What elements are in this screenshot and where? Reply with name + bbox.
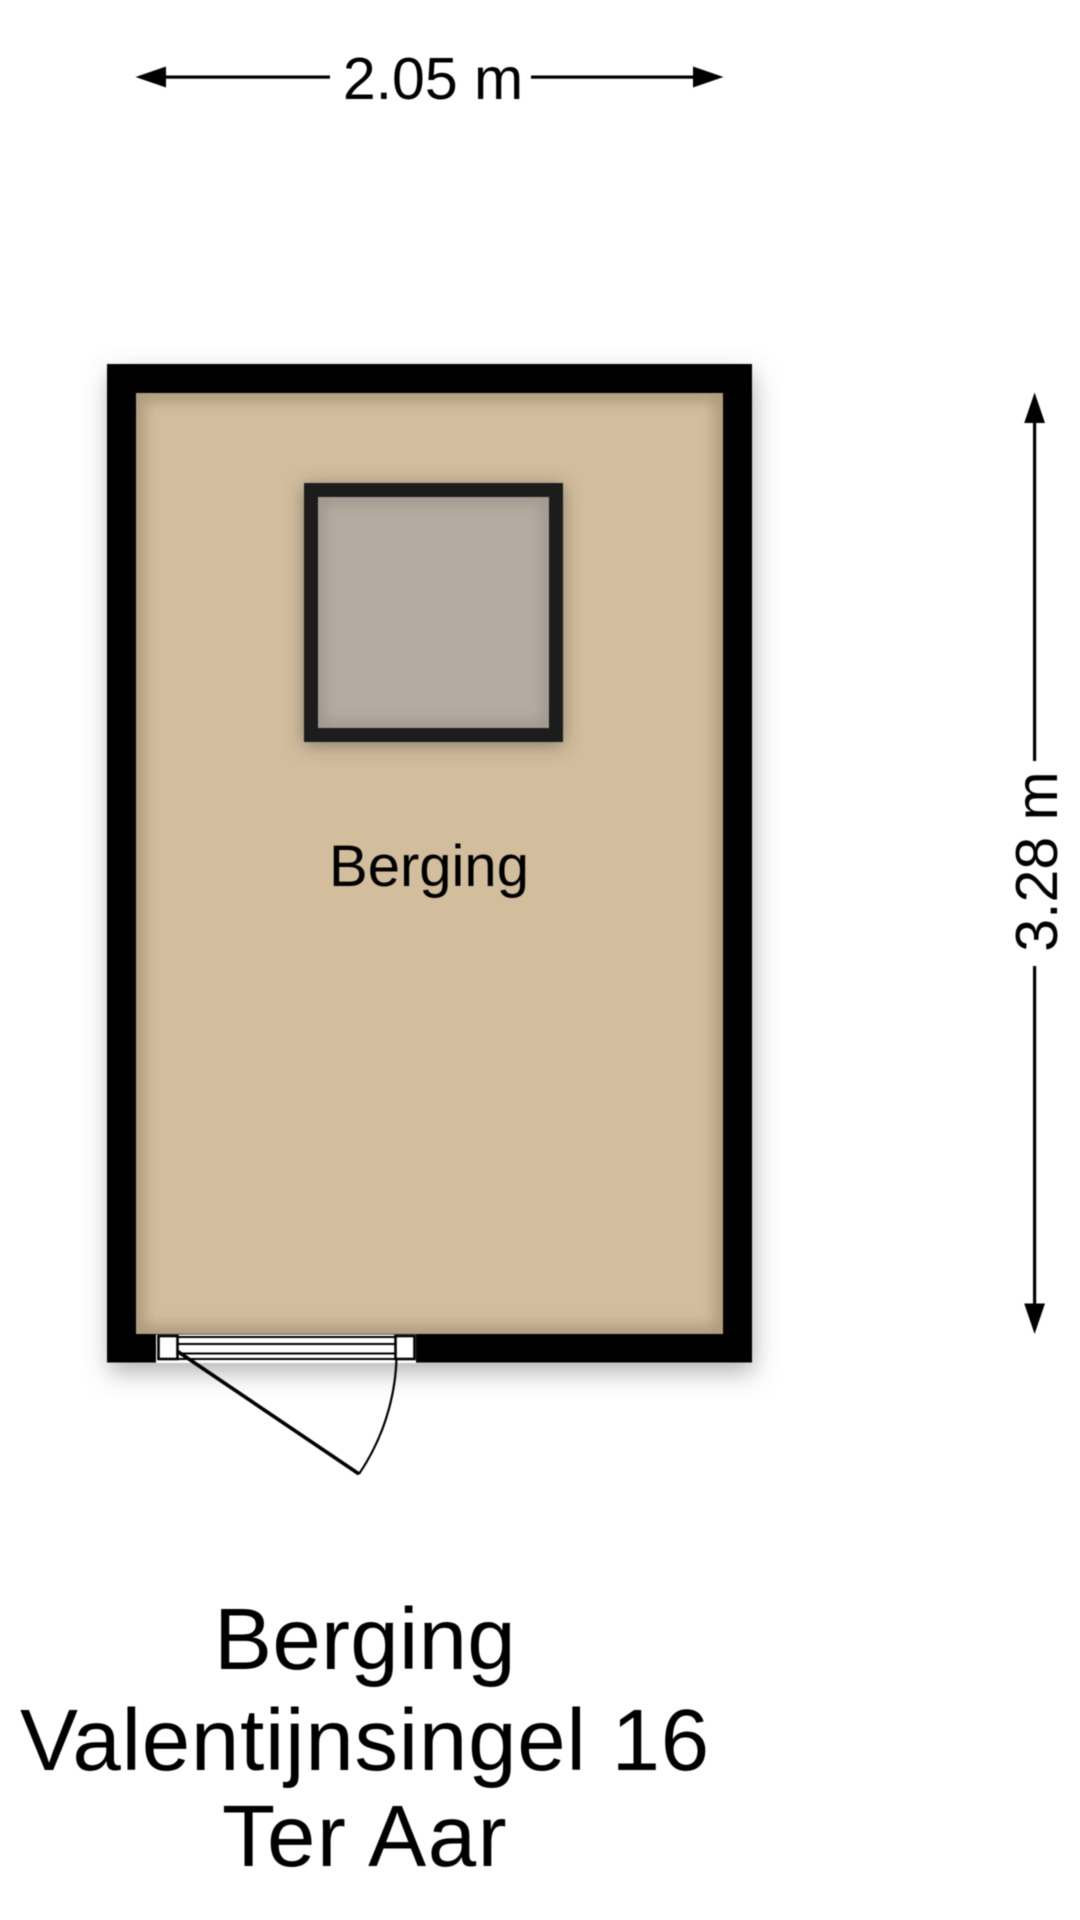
svg-text:Valentijnsingel 16: Valentijnsingel 16 <box>20 1692 710 1789</box>
svg-text:Berging: Berging <box>329 834 529 899</box>
svg-text:3.28 m: 3.28 m <box>1004 771 1070 951</box>
svg-text:Berging: Berging <box>214 1591 516 1688</box>
svg-text:2.05 m: 2.05 m <box>343 46 523 112</box>
svg-text:Ter Aar: Ter Aar <box>222 1788 508 1885</box>
